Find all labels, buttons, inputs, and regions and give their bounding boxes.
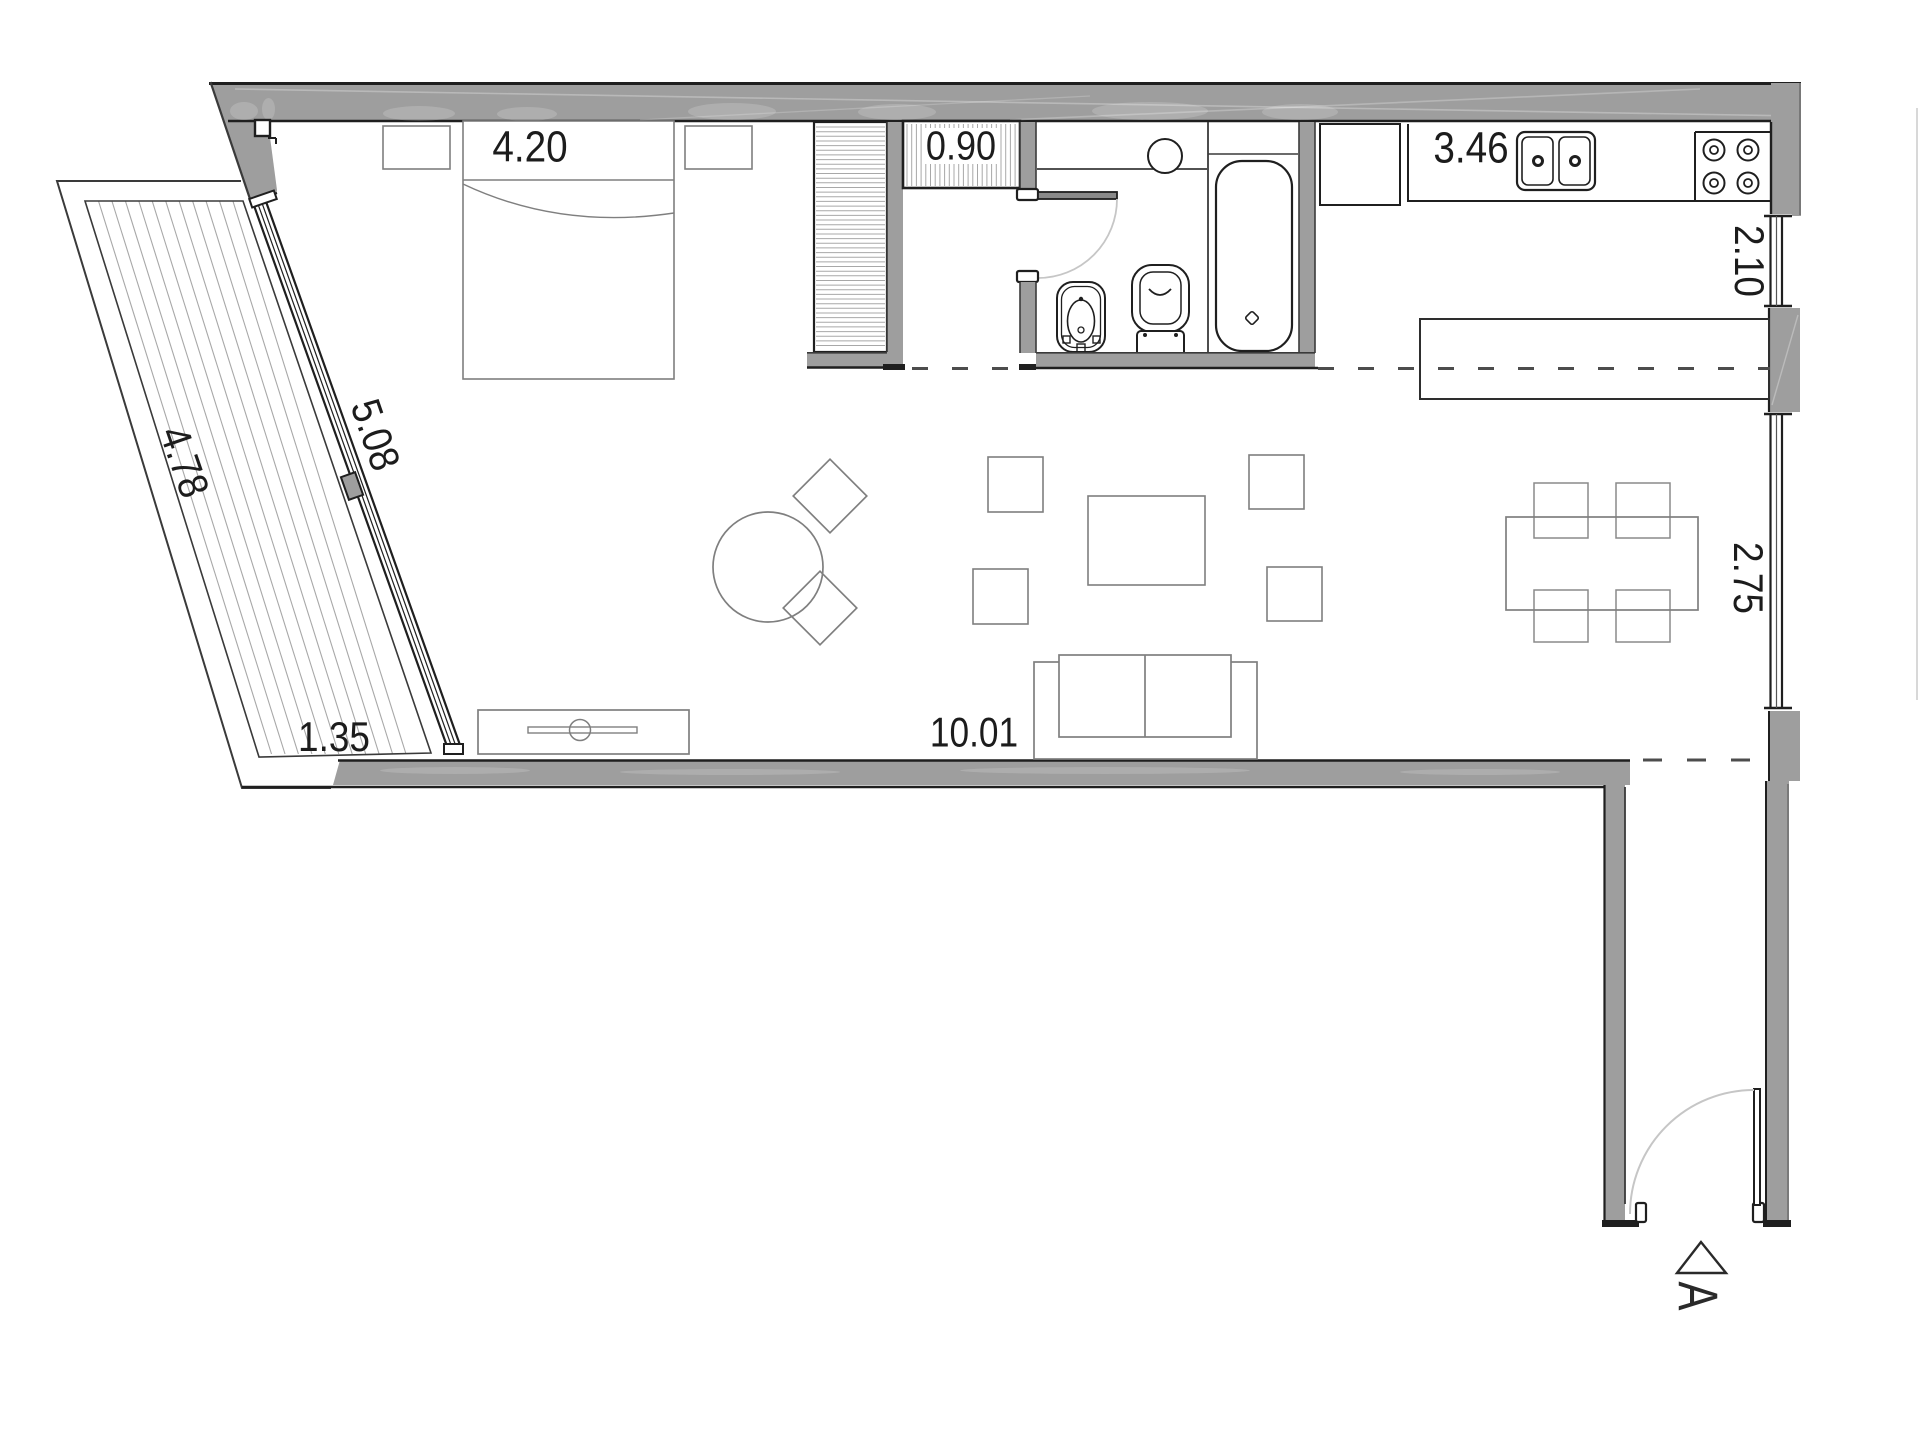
svg-text:4.78: 4.78: [150, 420, 218, 503]
svg-text:4.20: 4.20: [492, 121, 567, 171]
svg-text:2.75: 2.75: [1725, 542, 1772, 614]
svg-text:0.90: 0.90: [926, 123, 996, 169]
svg-text:10.01: 10.01: [930, 710, 1018, 757]
svg-text:2.10: 2.10: [1726, 225, 1773, 297]
svg-text:3.46: 3.46: [1433, 122, 1508, 172]
svg-text:A: A: [1667, 1281, 1729, 1311]
svg-text:1.35: 1.35: [298, 714, 370, 761]
